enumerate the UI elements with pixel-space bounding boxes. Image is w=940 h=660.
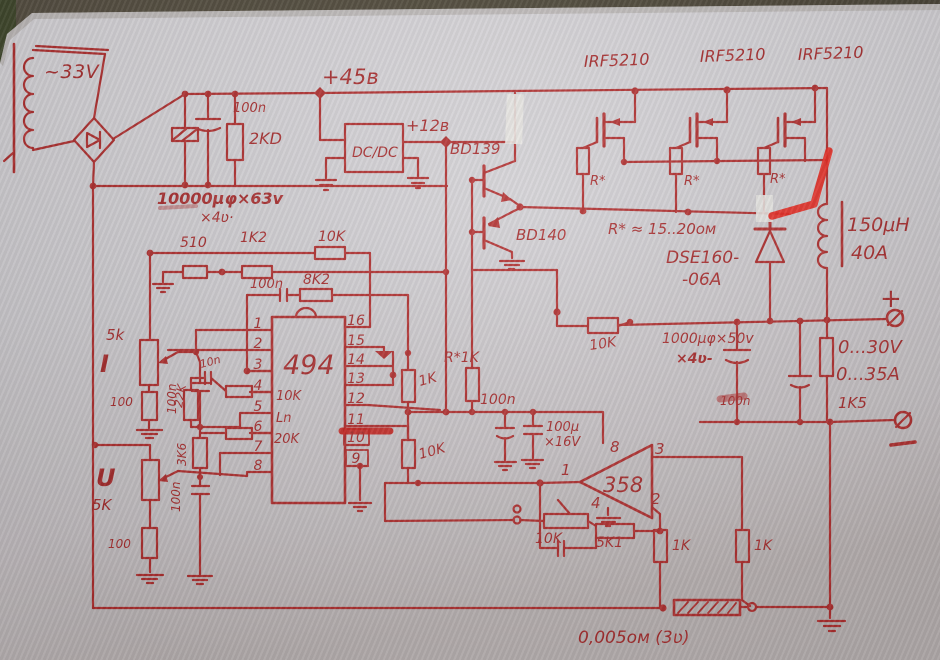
pin-14: 14 xyxy=(347,352,365,368)
label-resistor-100-u: 100 xyxy=(108,537,131,551)
label-pot-i-value: 5k xyxy=(106,326,126,344)
opamp-name: 358 xyxy=(603,473,643,497)
label-cap-10000u-qty: ×4ʋ· xyxy=(200,210,233,226)
label-bd140: BD140 xyxy=(516,226,566,244)
schematic-photo: ~33V +45в IRF5210 IRF5210 IRF5210 100n 2… xyxy=(0,0,940,660)
label-cap-100n-comp: 100n xyxy=(250,277,283,292)
label-shunt-value: 0,005ом (3ʋ) xyxy=(578,628,690,648)
schematic-canvas: ~33V +45в IRF5210 IRF5210 IRF5210 100n 2… xyxy=(0,0,940,660)
label-pot-u-value: 5K xyxy=(92,496,113,514)
label-resistor-10k-fb: 10K xyxy=(535,531,564,547)
opamp-pin-2: 2 xyxy=(651,490,661,508)
label-resistor-rstar-1k: R*1K xyxy=(444,350,481,366)
ic-494-note-20k: 20K xyxy=(274,432,301,447)
pin-2: 2 xyxy=(254,336,263,352)
label-output-current-range: 0...35A xyxy=(836,364,900,385)
label-resistor-1k-b: 1K xyxy=(754,538,774,554)
label-irf5210-1: IRF5210 xyxy=(583,50,649,71)
label-rail-45v: +45в xyxy=(322,65,379,89)
pin-10: 10 xyxy=(347,430,365,446)
opamp-pin-1: 1 xyxy=(561,461,571,479)
label-rstar-note: R* ≈ 15..20ом xyxy=(608,220,716,238)
label-cap-10000u: 10000μφ×63v xyxy=(157,189,284,208)
opamp-pin-8: 8 xyxy=(610,438,620,456)
label-resistor-1k2: 1K2 xyxy=(240,230,267,246)
label-cap-100n-mid: 100n xyxy=(480,392,516,408)
label-resistor-5k1: 5K1 xyxy=(596,535,623,551)
pin-16: 16 xyxy=(347,313,365,329)
label-output-voltage-range: 0...30V xyxy=(838,337,904,358)
pin-13: 13 xyxy=(347,371,365,387)
ic-494-note-10k: 10K xyxy=(276,389,303,404)
opamp-pin-3: 3 xyxy=(655,440,665,458)
label-cap-100n-out: 100n xyxy=(720,394,751,408)
opamp-pin-4: 4 xyxy=(591,494,601,512)
pin-12: 12 xyxy=(347,391,365,407)
label-cap-1000u-qty: ×4ʋ- xyxy=(676,351,713,367)
pin-8: 8 xyxy=(254,458,263,474)
ic-494-name: 494 xyxy=(283,350,335,381)
label-resistor-8k2: 8K2 xyxy=(303,272,330,288)
label-plus-terminal: + xyxy=(880,284,902,314)
label-cap-1000u: 1000μφ×50v xyxy=(662,331,754,347)
label-pot-voltage: U xyxy=(96,464,116,492)
label-cap-100n-u: 100n xyxy=(169,481,183,512)
label-diode-dse160: DSE160- xyxy=(666,248,739,268)
label-dcdc-module: DC/DC xyxy=(352,145,398,161)
label-irf5210-2: IRF5210 xyxy=(699,45,765,66)
label-rail-12v: +12в xyxy=(406,116,449,135)
label-resistor-2kd: 2KD xyxy=(249,129,282,148)
label-diode-dse160-2: -06A xyxy=(682,270,721,290)
pin-5: 5 xyxy=(254,399,263,415)
label-pot-current: I xyxy=(100,350,109,378)
pin-11: 11 xyxy=(347,412,365,428)
label-resistor-3k6: 3K6 xyxy=(175,442,189,466)
label-cap-100n-input: 100n xyxy=(233,101,266,116)
pin-6: 6 xyxy=(254,419,263,435)
label-inductor-current: 40A xyxy=(851,242,888,264)
pin-3: 3 xyxy=(254,357,263,373)
label-rstar-2: R* xyxy=(684,174,700,189)
pin-15: 15 xyxy=(347,333,365,349)
pin-9: 9 xyxy=(352,451,361,467)
label-resistor-1k5: 1K5 xyxy=(838,394,867,412)
label-rstar-1: R* xyxy=(590,174,606,189)
label-resistor-100-i: 100 xyxy=(110,395,133,409)
label-cap-100u: 100μ xyxy=(546,420,579,435)
pin-1: 1 xyxy=(254,316,263,332)
label-resistor-510: 510 xyxy=(180,235,207,251)
label-cap-100u-voltage: ×16V xyxy=(544,435,581,450)
pin-7: 7 xyxy=(254,439,263,455)
label-resistor-1k-a: 1K xyxy=(672,538,692,554)
ic-494-note-ln: Ln xyxy=(276,411,291,426)
label-inductor-value: 150μH xyxy=(847,214,910,236)
pin-4: 4 xyxy=(254,378,263,394)
label-rstar-3: R* xyxy=(770,172,786,187)
label-resistor-10k-top: 10K xyxy=(318,229,347,245)
label-bd139: BD139 xyxy=(450,140,500,158)
label-irf5210-3: IRF5210 xyxy=(797,43,863,64)
label-transformer-voltage: ~33V xyxy=(44,61,101,83)
